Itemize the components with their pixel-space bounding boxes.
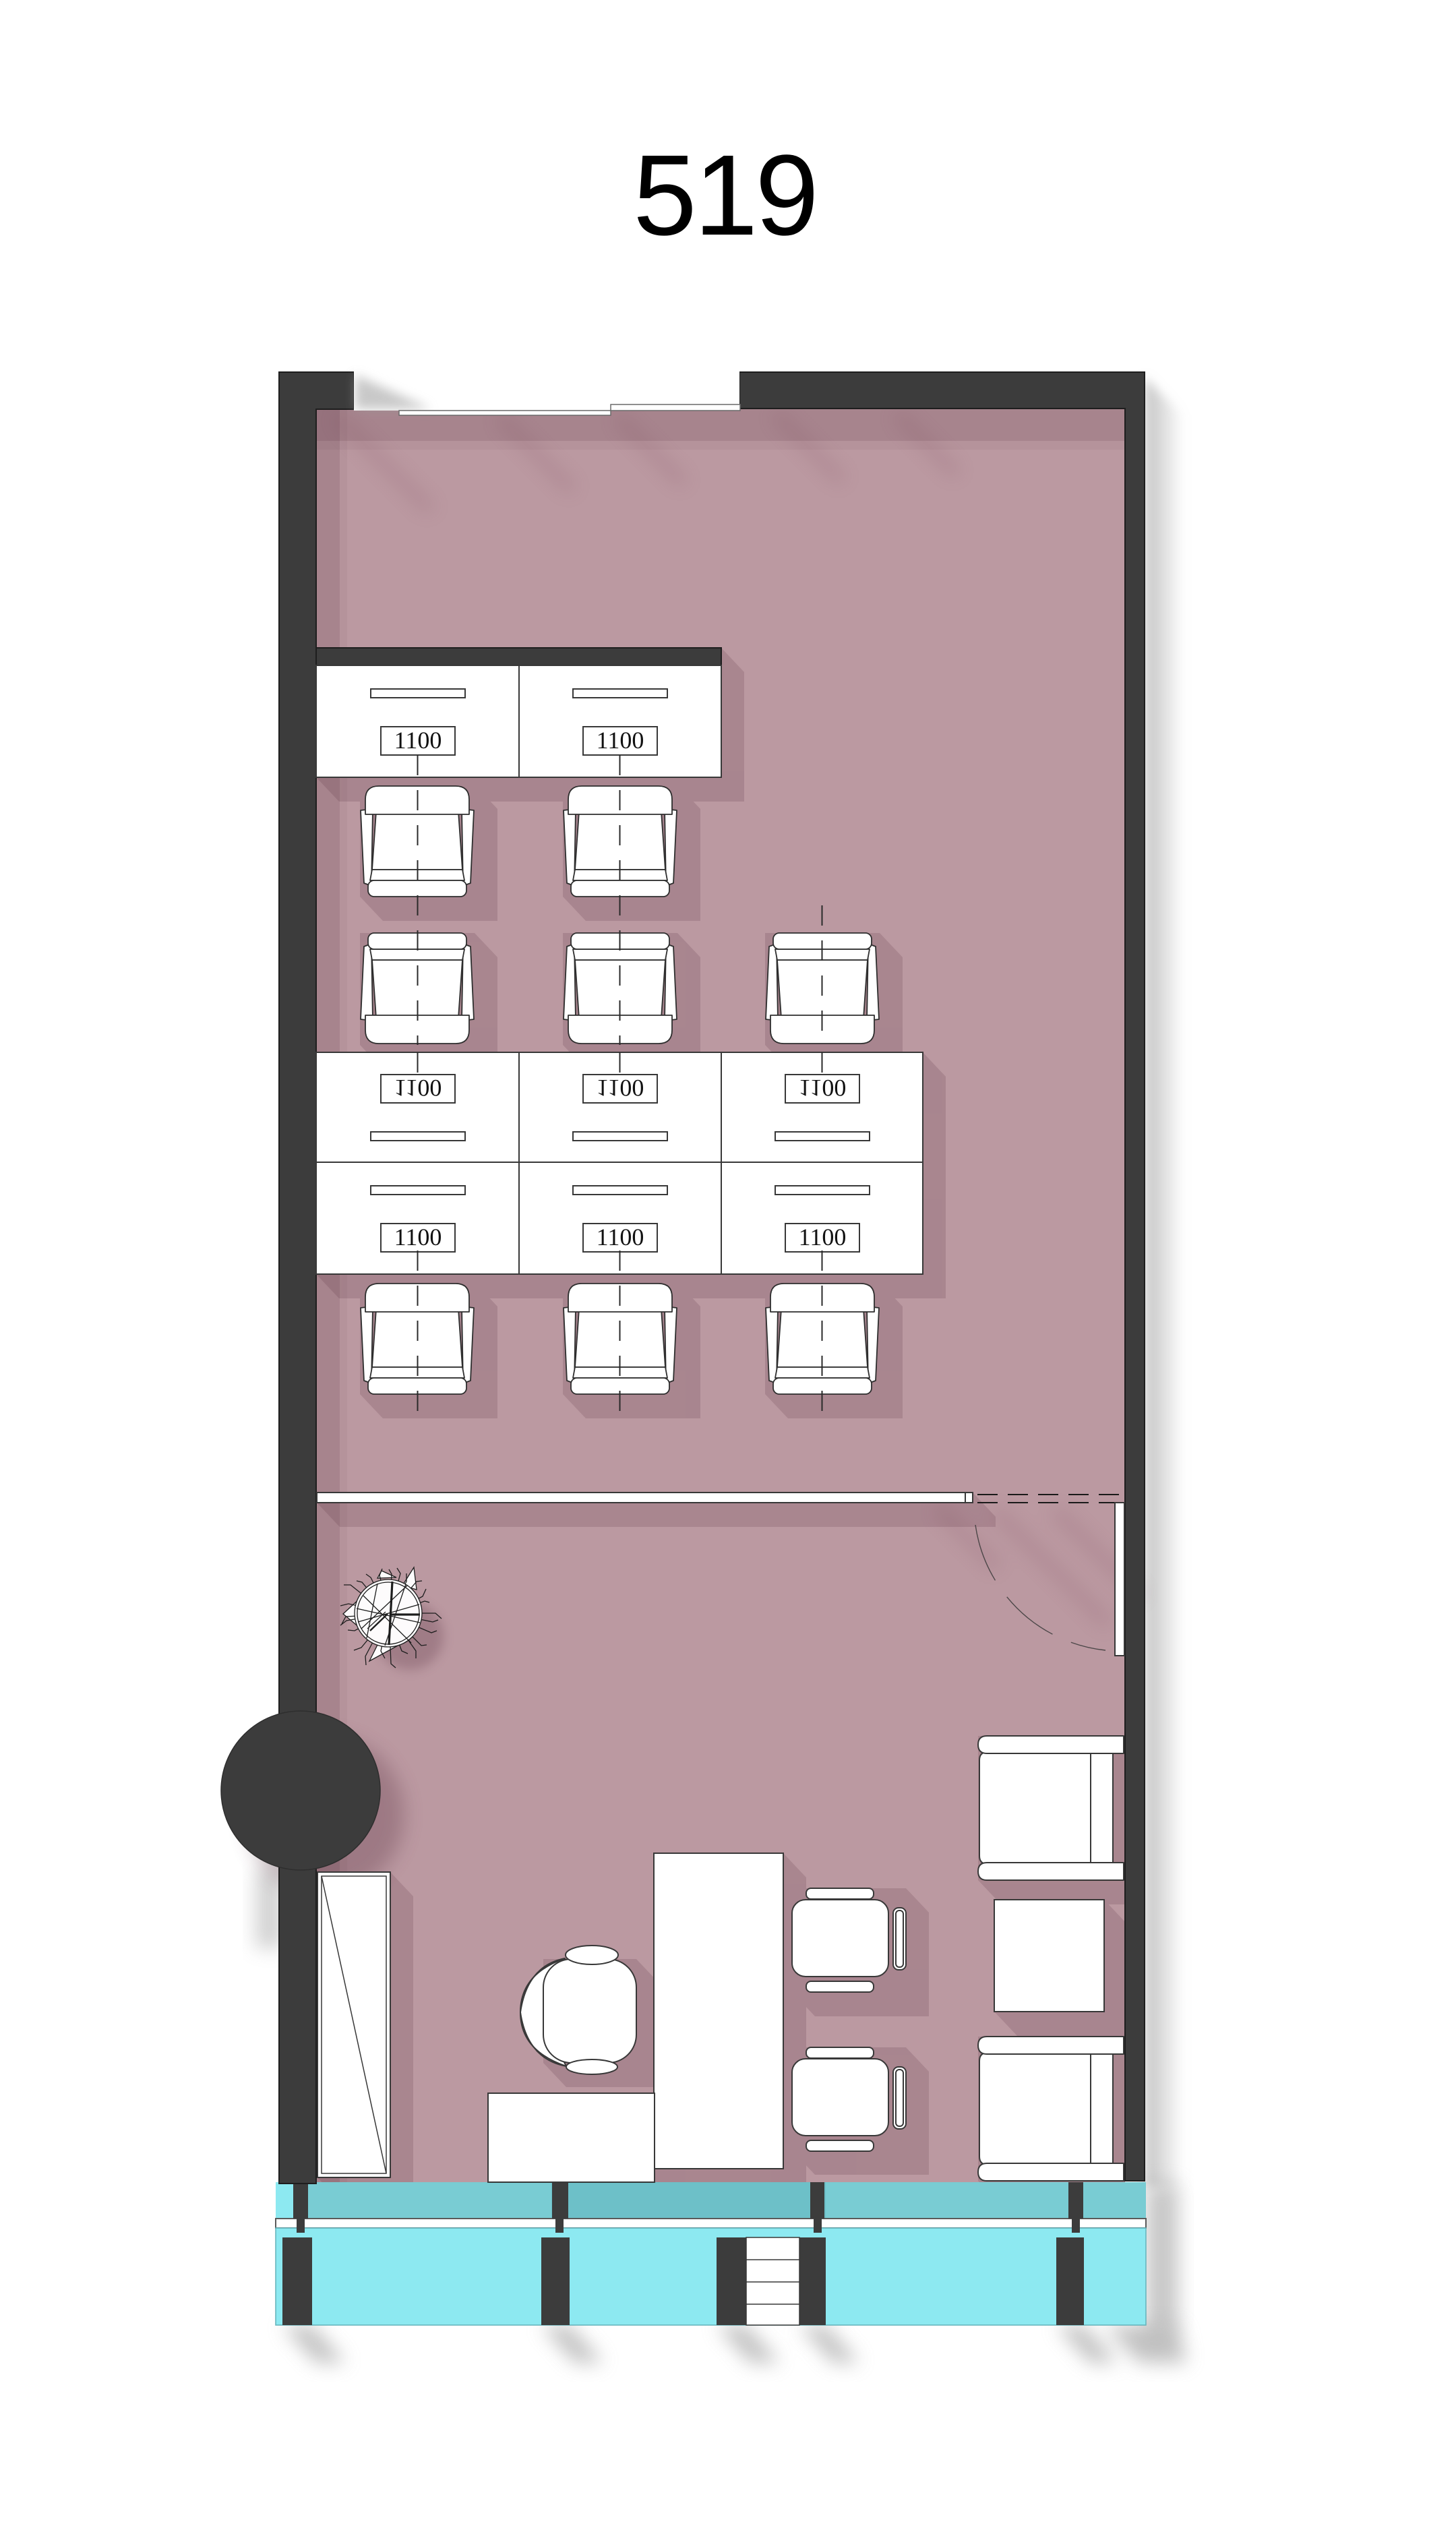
svg-text:519: 519 — [633, 131, 816, 260]
